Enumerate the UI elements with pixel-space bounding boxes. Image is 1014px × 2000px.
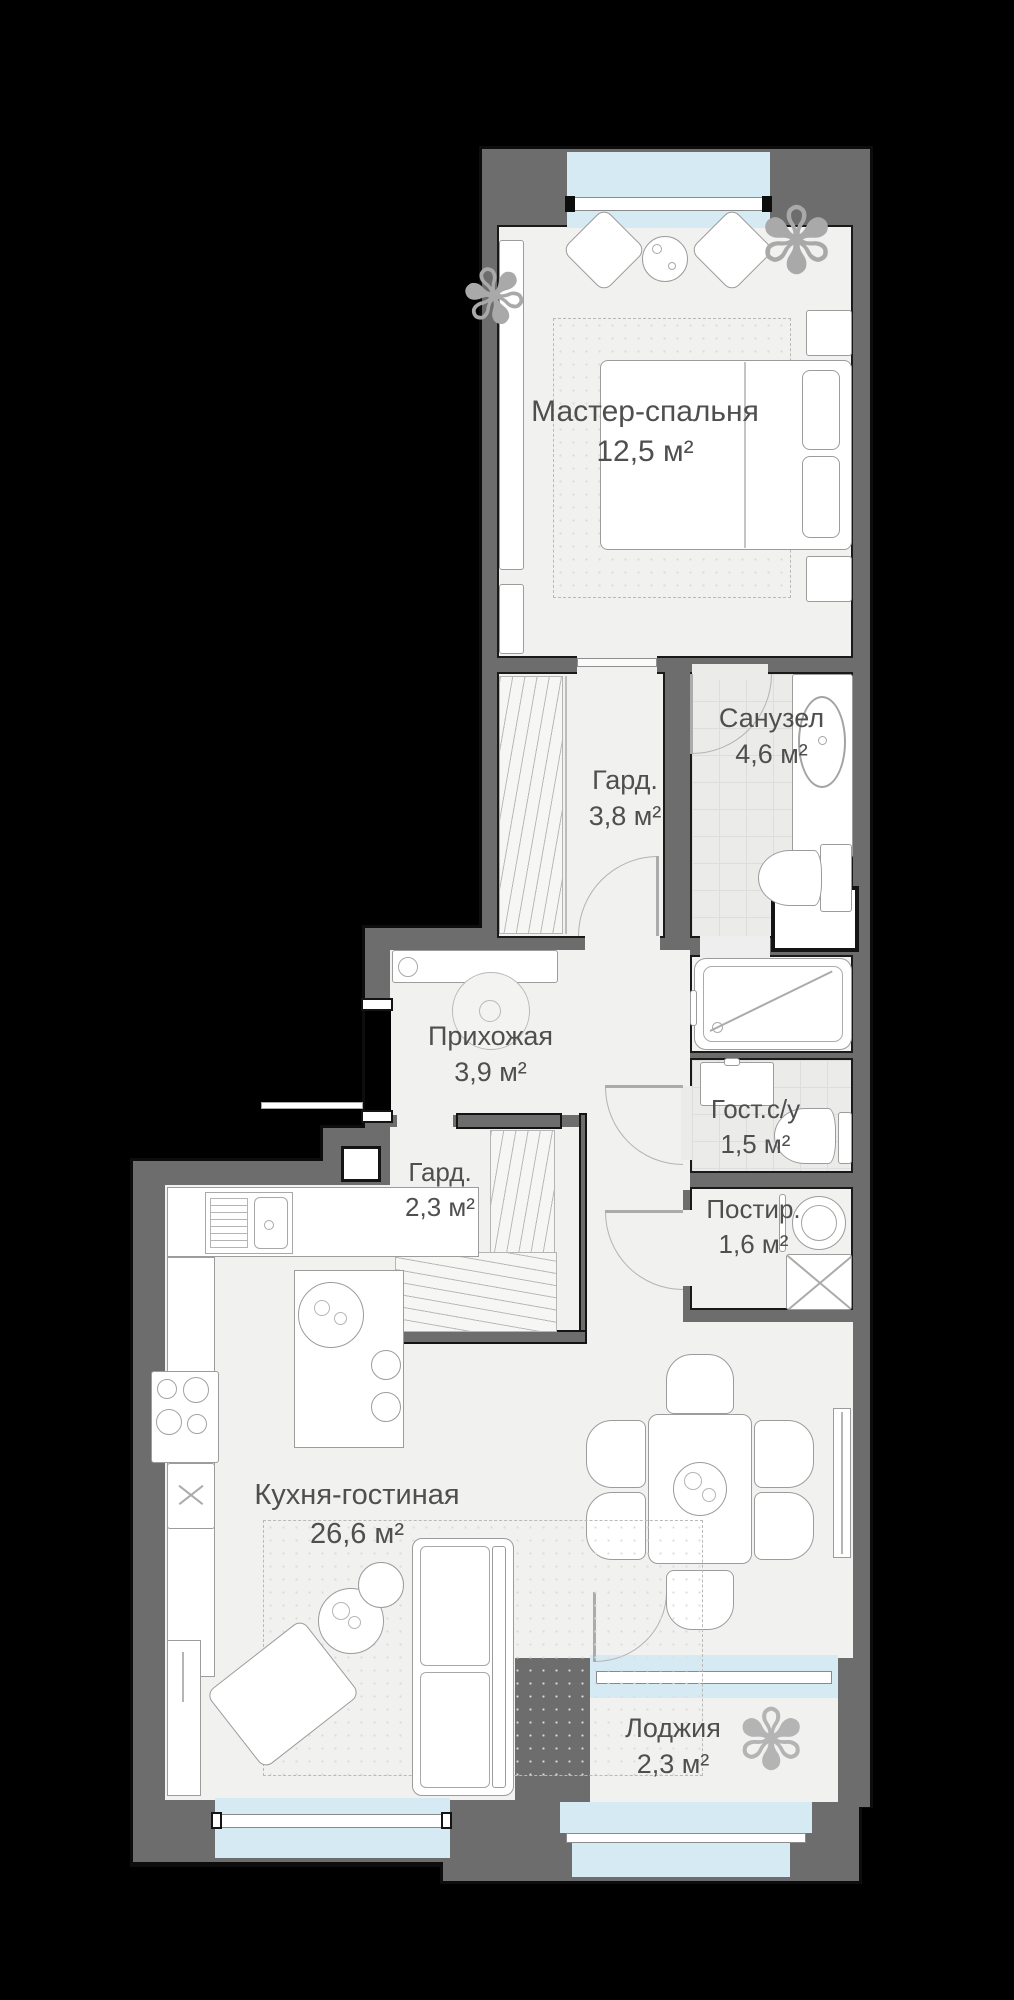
room-area: 12,5 м² xyxy=(500,432,790,472)
window-sill xyxy=(566,1833,806,1843)
room-name: Гард. xyxy=(380,1155,500,1190)
burner xyxy=(183,1377,209,1403)
wall-closet-top xyxy=(456,1113,562,1129)
window-kitchen xyxy=(215,1798,450,1858)
sink-drainer xyxy=(210,1198,248,1248)
sofa-back xyxy=(492,1546,506,1788)
island-plant-leaf xyxy=(314,1300,330,1316)
room-name: Постир. xyxy=(686,1192,821,1227)
key-hook-icon xyxy=(398,957,418,977)
nightstand xyxy=(806,310,852,356)
label-kitchen-living: Кухня-гостиная 26,6 м² xyxy=(222,1476,492,1554)
floor-plan: ✾ ✾ xyxy=(0,0,1014,2000)
label-loggia: Лоджия 2,3 м² xyxy=(588,1710,758,1782)
coffee-table-decor xyxy=(332,1602,350,1620)
burner xyxy=(187,1414,207,1434)
door-opening xyxy=(397,1113,453,1131)
window-cap xyxy=(441,1812,452,1829)
dining-chair xyxy=(754,1492,814,1560)
label-wardrobe-38: Гард. 3,8 м² xyxy=(560,762,690,834)
room-area: 1,5 м² xyxy=(688,1127,823,1162)
window-sill xyxy=(220,1814,445,1828)
room-area: 3,9 м² xyxy=(388,1054,593,1090)
door-opening xyxy=(700,936,770,958)
label-hallway: Прихожая 3,9 м² xyxy=(388,1018,593,1090)
label-bathroom: Санузел 4,6 м² xyxy=(690,700,853,772)
toilet-tank xyxy=(820,844,852,912)
room-area: 2,3 м² xyxy=(380,1190,500,1225)
dining-chair xyxy=(586,1420,646,1488)
nightstand xyxy=(806,556,852,602)
door-jamb xyxy=(361,1110,393,1123)
dishwasher-box xyxy=(167,1463,215,1529)
room-name: Санузел xyxy=(690,700,853,736)
centerpiece-detail xyxy=(684,1472,702,1490)
faucet-icon xyxy=(690,990,697,1026)
toilet-tank xyxy=(838,1112,852,1164)
bar-stool xyxy=(371,1392,401,1422)
tall-cabinet xyxy=(167,1640,201,1796)
bathtub-drain xyxy=(712,1022,723,1033)
burner xyxy=(157,1379,177,1399)
room-name: Мастер-спальня xyxy=(500,392,790,432)
bar-stool xyxy=(371,1350,401,1380)
stove-icon xyxy=(151,1371,219,1463)
appliance-box xyxy=(786,1254,852,1310)
wardrobe-shelving xyxy=(395,1252,557,1332)
radiator-line xyxy=(841,1412,843,1554)
coffee-table-small xyxy=(358,1562,404,1608)
room-area: 26,6 м² xyxy=(222,1515,492,1554)
room-area: 2,3 м² xyxy=(588,1746,758,1782)
window-cap xyxy=(211,1812,222,1829)
sink-tap xyxy=(264,1220,274,1230)
room-name: Гост.с/у xyxy=(688,1092,823,1127)
table-centerpiece xyxy=(673,1462,727,1516)
sofa-cushion xyxy=(420,1672,490,1788)
door-jamb xyxy=(361,998,393,1011)
room-area: 4,6 м² xyxy=(690,736,853,772)
entrance-threshold xyxy=(261,1102,363,1109)
label-guest-wc: Гост.с/у 1,5 м² xyxy=(688,1092,823,1162)
coffee-table-decor xyxy=(348,1616,361,1629)
pillow xyxy=(802,370,840,450)
island-plant xyxy=(298,1282,364,1348)
side-table-decor xyxy=(652,244,662,254)
toilet-bowl xyxy=(758,850,822,906)
room-name: Гард. xyxy=(560,762,690,798)
sofa-cushion xyxy=(420,1546,490,1666)
wall-closet-bottom xyxy=(388,1330,587,1344)
label-wardrobe-23: Гард. 2,3 м² xyxy=(380,1155,500,1225)
centerpiece-detail xyxy=(702,1488,716,1502)
door-leaf xyxy=(605,1085,683,1088)
window-cap xyxy=(565,196,575,212)
room-name: Кухня-гостиная xyxy=(222,1476,492,1515)
faucet-icon xyxy=(724,1058,740,1066)
room-area: 3,8 м² xyxy=(560,798,690,834)
dining-chair xyxy=(754,1420,814,1488)
island-plant-leaf xyxy=(334,1312,347,1325)
door-slide-bedroom xyxy=(577,658,657,667)
side-table-decor xyxy=(668,262,676,270)
plant-icon: ✾ xyxy=(758,196,835,288)
window-loggia-outer xyxy=(560,1802,812,1833)
window-sill xyxy=(573,197,764,211)
room-name: Лоджия xyxy=(588,1710,758,1746)
window-loggia-outer2 xyxy=(572,1843,790,1877)
room-area: 1,6 м² xyxy=(686,1227,821,1262)
pillow xyxy=(802,456,840,538)
wardrobe-shelving xyxy=(499,676,563,934)
label-master-bedroom: Мастер-спальня 12,5 м² xyxy=(500,392,790,472)
side-table xyxy=(642,236,688,282)
utility-shaft xyxy=(341,1146,381,1182)
burner xyxy=(156,1409,182,1435)
label-laundry: Постир. 1,6 м² xyxy=(686,1192,821,1262)
wall-closet-right xyxy=(579,1113,587,1335)
shelf xyxy=(499,584,524,654)
cabinet-handle xyxy=(182,1652,184,1702)
dining-chair xyxy=(666,1354,734,1414)
room-name: Прихожая xyxy=(388,1018,593,1054)
door-leaf xyxy=(656,856,659,936)
door-leaf xyxy=(605,1210,683,1213)
